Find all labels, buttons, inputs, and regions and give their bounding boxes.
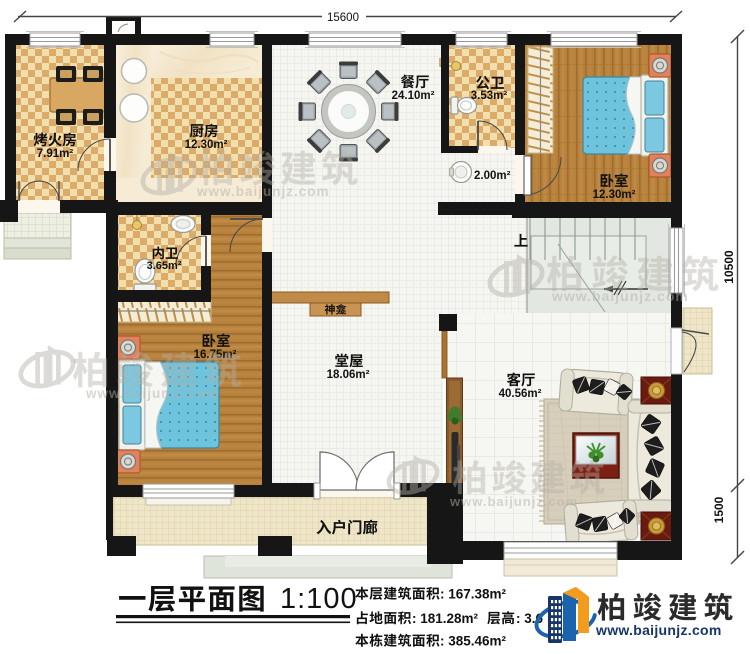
- svg-text:12.30m²: 12.30m²: [593, 189, 636, 201]
- svg-text:10500: 10500: [722, 250, 736, 284]
- svg-text:: 181.28m²: : 181.28m²: [412, 611, 479, 626]
- svg-text:www.baijunjz.com: www.baijunjz.com: [449, 494, 578, 509]
- svg-text:1:100: 1:100: [280, 583, 358, 615]
- svg-text:: 167.38m²: : 167.38m²: [440, 587, 507, 602]
- svg-text:1500: 1500: [712, 496, 726, 523]
- svg-text:40.56m²: 40.56m²: [499, 388, 542, 400]
- svg-text:www.baijunjz.com: www.baijunjz.com: [595, 622, 722, 638]
- svg-text:www.baijunjz.com: www.baijunjz.com: [85, 386, 219, 401]
- svg-text:7.91m²: 7.91m²: [37, 148, 74, 160]
- svg-text:24.10m²: 24.10m²: [392, 90, 435, 102]
- svg-text:3.65m²: 3.65m²: [147, 260, 182, 272]
- svg-text:: 385.46m²: : 385.46m²: [440, 634, 507, 649]
- svg-text:15600: 15600: [327, 12, 359, 24]
- svg-text:www.baijunjz.com: www.baijunjz.com: [551, 288, 689, 304]
- svg-text:www.baijunjz.com: www.baijunjz.com: [196, 184, 330, 199]
- svg-text:3.53m²: 3.53m²: [471, 90, 508, 102]
- svg-text:18.06m²: 18.06m²: [327, 369, 370, 381]
- svg-text:12.30m²: 12.30m²: [185, 139, 228, 151]
- svg-text:2.00m²: 2.00m²: [474, 170, 511, 182]
